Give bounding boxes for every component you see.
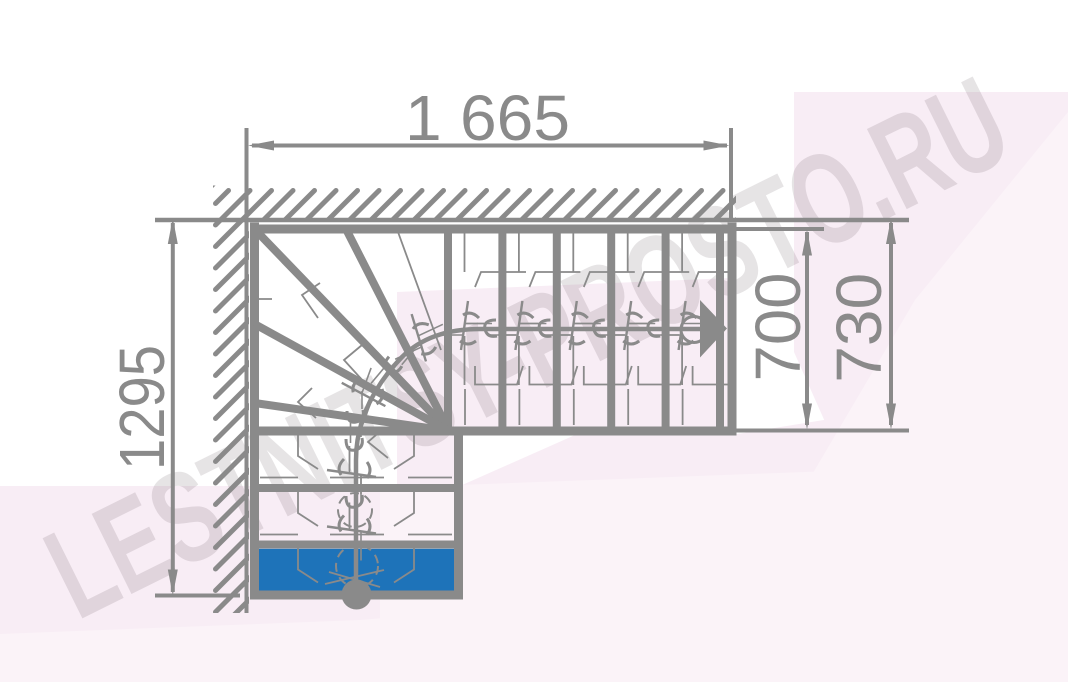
svg-text:1 665: 1 665 — [405, 82, 570, 154]
svg-text:700: 700 — [742, 273, 814, 382]
svg-text:730: 730 — [823, 273, 895, 383]
svg-text:1295: 1295 — [106, 345, 178, 470]
